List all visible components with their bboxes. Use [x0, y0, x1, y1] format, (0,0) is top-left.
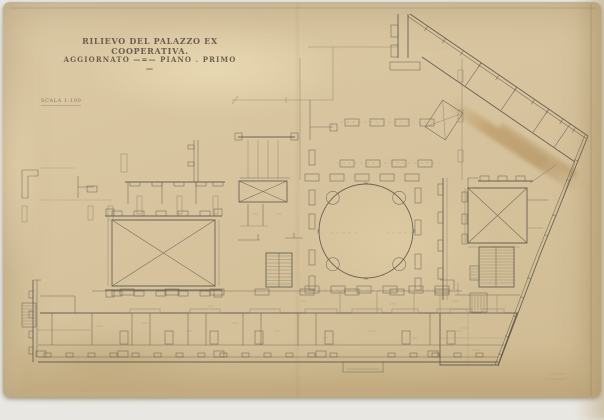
pillar-row-mid — [340, 160, 432, 167]
scale-label: SCALA 1:100 — [41, 98, 81, 106]
bottom-facade — [36, 351, 498, 372]
left-wing — [22, 280, 41, 362]
bottom-room-band — [38, 289, 518, 345]
upper-left-rooms — [22, 140, 225, 222]
pillar-column-right — [415, 188, 421, 290]
stair-diagonal-wing — [425, 100, 463, 140]
stair-center — [266, 253, 292, 287]
pillar-row-above-rotunda — [305, 174, 419, 181]
scanned-drawing-stage: RILIEVO DEL PALAZZO EX COOPERATIVA. AGGI… — [0, 0, 604, 400]
stair-right — [440, 247, 520, 313]
corner-annotation — [545, 374, 566, 379]
pillar-column-left — [309, 150, 315, 290]
rotunda — [318, 183, 414, 279]
corridor-pillars — [120, 331, 455, 344]
center-block — [235, 133, 303, 287]
courtyard-right — [462, 176, 548, 247]
central-hall — [232, 14, 463, 300]
diagonal-street-wing — [408, 14, 588, 198]
courtyard-left — [105, 209, 222, 297]
title-block: RILIEVO DEL PALAZZO EX COOPERATIVA. AGGI… — [58, 37, 242, 73]
pillar-row-upper — [345, 119, 434, 126]
drawing-title-line1: RILIEVO DEL PALAZZO EX COOPERATIVA. — [58, 37, 242, 56]
drawing-title-line2: AGGIORNATO —=— PIANO . PRIMO — — [58, 56, 242, 73]
street-edge-right — [495, 135, 588, 366]
